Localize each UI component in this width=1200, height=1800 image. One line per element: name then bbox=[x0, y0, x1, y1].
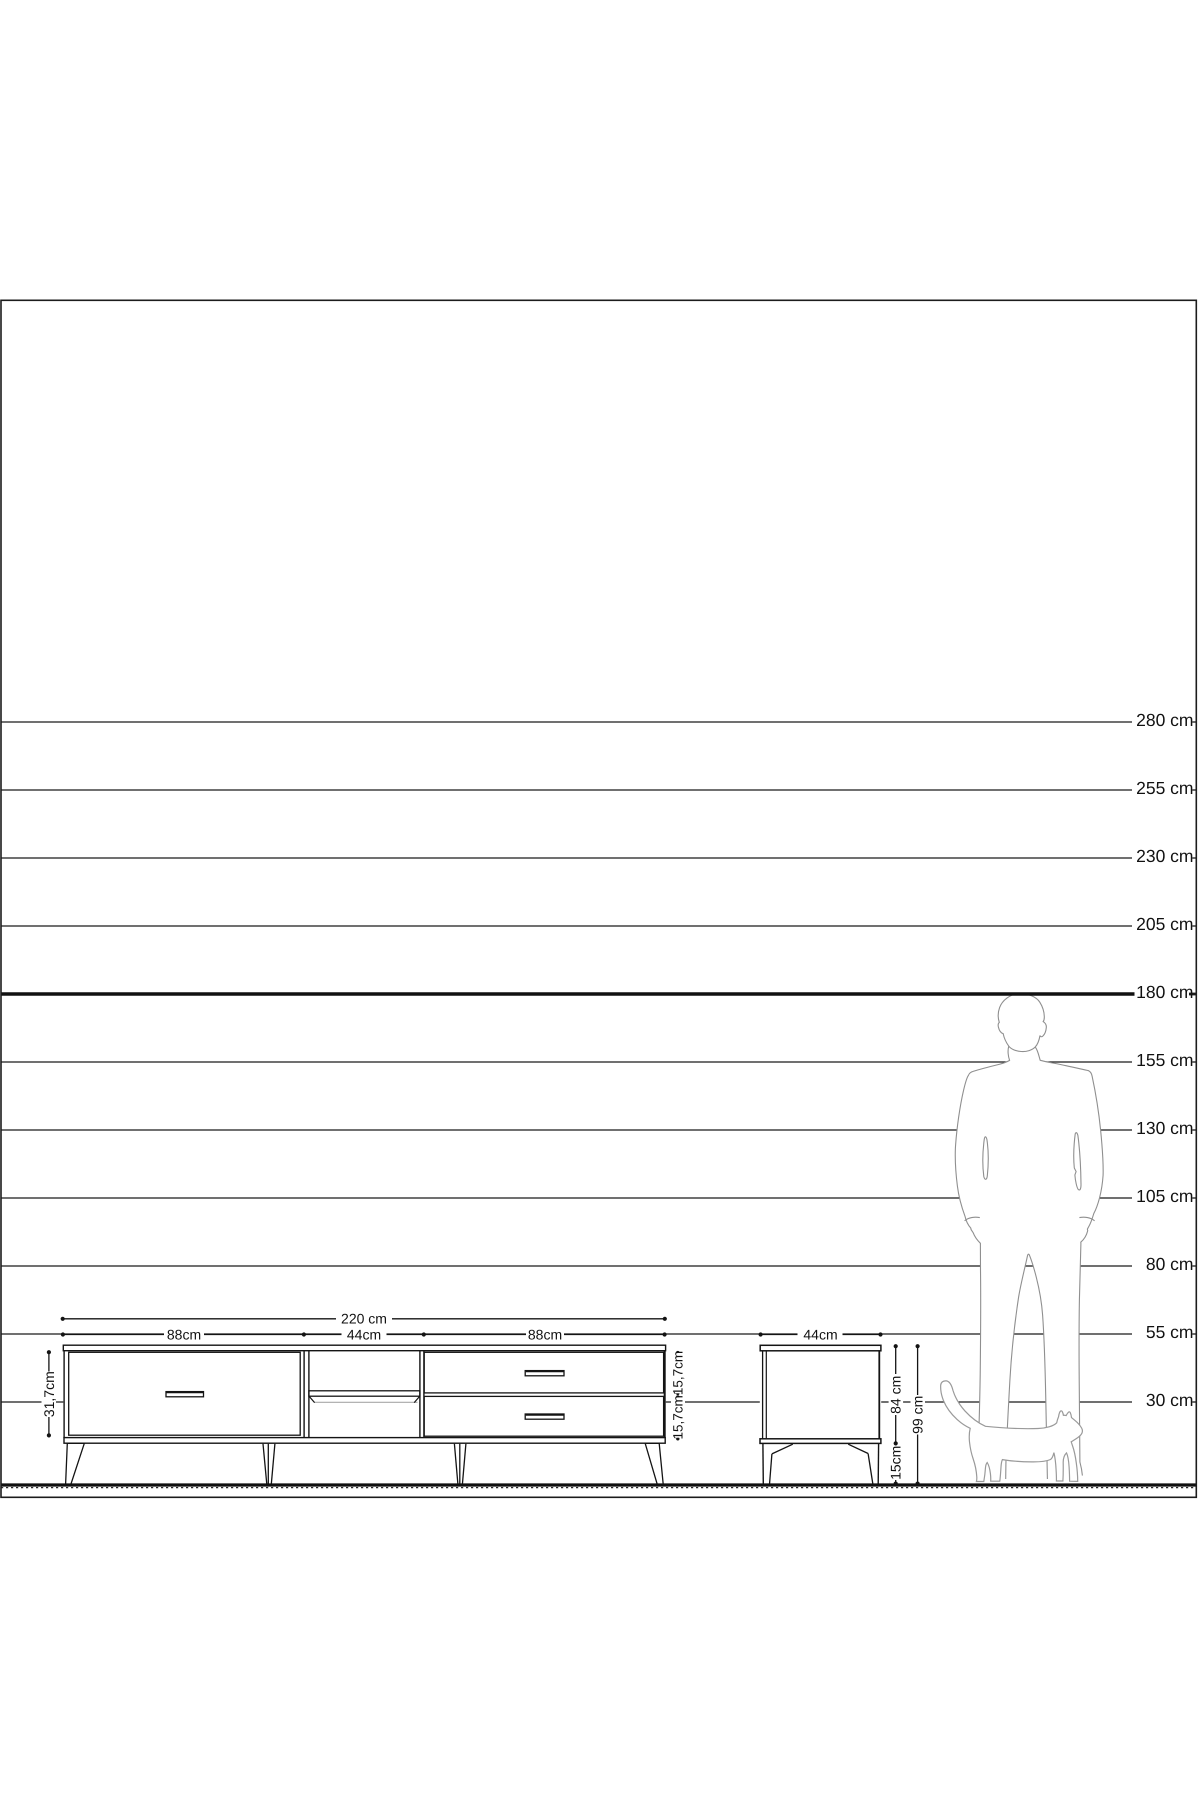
svg-text:130 cm: 130 cm bbox=[1136, 1118, 1193, 1138]
svg-text:280 cm: 280 cm bbox=[1136, 710, 1193, 730]
svg-text:15,7cm: 15,7cm bbox=[670, 1351, 685, 1395]
svg-text:84 cm: 84 cm bbox=[887, 1376, 903, 1414]
svg-text:44cm: 44cm bbox=[347, 1326, 381, 1342]
svg-text:88cm: 88cm bbox=[528, 1326, 562, 1342]
svg-text:105 cm: 105 cm bbox=[1136, 1186, 1193, 1206]
svg-text:230 cm: 230 cm bbox=[1136, 846, 1193, 866]
svg-text:31,7cm: 31,7cm bbox=[41, 1371, 57, 1417]
svg-text:80 cm: 80 cm bbox=[1146, 1254, 1194, 1274]
svg-text:205 cm: 205 cm bbox=[1136, 914, 1193, 934]
svg-text:99 cm: 99 cm bbox=[909, 1396, 925, 1434]
svg-text:15cm: 15cm bbox=[887, 1446, 903, 1480]
svg-text:220 cm: 220 cm bbox=[341, 1311, 387, 1327]
svg-text:180 cm: 180 cm bbox=[1136, 982, 1193, 1002]
svg-text:44cm: 44cm bbox=[803, 1326, 837, 1342]
svg-text:55 cm: 55 cm bbox=[1146, 1322, 1194, 1342]
svg-text:255 cm: 255 cm bbox=[1136, 778, 1193, 798]
svg-text:155 cm: 155 cm bbox=[1136, 1050, 1193, 1070]
svg-text:30 cm: 30 cm bbox=[1146, 1390, 1194, 1410]
svg-text:15,7cm: 15,7cm bbox=[670, 1395, 685, 1439]
svg-text:88cm: 88cm bbox=[167, 1326, 201, 1342]
